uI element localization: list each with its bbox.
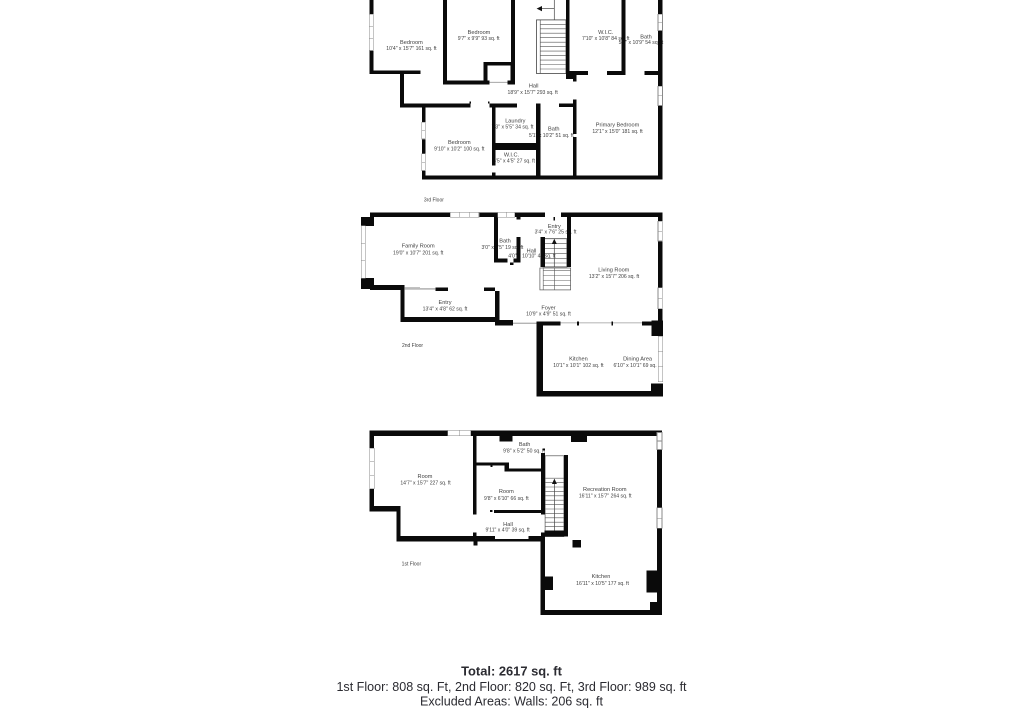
svg-text:16'11" x 10'5" 177 sq. ft: 16'11" x 10'5" 177 sq. ft: [576, 581, 629, 587]
svg-text:Bath: Bath: [548, 126, 560, 132]
svg-text:Entry: Entry: [438, 300, 451, 306]
svg-text:Hall: Hall: [529, 84, 539, 90]
svg-text:Room: Room: [499, 489, 514, 495]
svg-text:18'9" x 15'7" 293 sq. ft: 18'9" x 15'7" 293 sq. ft: [508, 90, 559, 96]
svg-text:3rd Floor: 3rd Floor: [424, 197, 444, 203]
svg-text:Laundry: Laundry: [505, 118, 525, 124]
svg-text:9'10" x 10'2" 100 sq. ft: 9'10" x 10'2" 100 sq. ft: [434, 147, 485, 153]
svg-text:Room: Room: [418, 474, 433, 480]
svg-text:Bath: Bath: [499, 238, 511, 244]
svg-text:12'1" x 15'0" 181 sq. ft: 12'1" x 15'0" 181 sq. ft: [592, 129, 643, 135]
svg-text:9'8" x 5'2" 50 sq. ft: 9'8" x 5'2" 50 sq. ft: [503, 448, 545, 454]
svg-text:16'11" x 15'7" 264 sq. ft: 16'11" x 15'7" 264 sq. ft: [579, 494, 632, 500]
svg-text:19'0" x 10'7" 201 sq. ft: 19'0" x 10'7" 201 sq. ft: [393, 250, 444, 256]
svg-text:2nd Floor: 2nd Floor: [402, 343, 423, 349]
svg-text:Primary Bedroom: Primary Bedroom: [596, 122, 640, 128]
svg-text:Recreation Room: Recreation Room: [583, 487, 627, 493]
svg-text:Living Room: Living Room: [598, 268, 629, 274]
svg-text:10'1" x 10'1" 102 sq. ft: 10'1" x 10'1" 102 sq. ft: [553, 363, 604, 369]
svg-text:7'3" x 5'5" 34 sq. ft: 7'3" x 5'5" 34 sq. ft: [492, 125, 534, 131]
svg-text:Excluded Areas: Walls: 206 sq.: Excluded Areas: Walls: 206 sq. ft: [420, 695, 603, 709]
svg-text:Kitchen: Kitchen: [569, 357, 588, 363]
svg-text:9'7" x 9'9" 93 sq. ft: 9'7" x 9'9" 93 sq. ft: [458, 36, 500, 42]
svg-text:Family Room: Family Room: [402, 244, 435, 250]
svg-text:Bedroom: Bedroom: [448, 140, 471, 146]
svg-text:10'9" x 4'9" 51 sq. ft: 10'9" x 4'9" 51 sq. ft: [526, 311, 571, 317]
svg-text:Bedroom: Bedroom: [468, 30, 491, 36]
svg-text:5'1" x 10'2" 51 sq. ft: 5'1" x 10'2" 51 sq. ft: [529, 133, 574, 139]
svg-text:Kitchen: Kitchen: [592, 574, 611, 580]
svg-text:9'11" x 4'0" 39 sq. ft: 9'11" x 4'0" 39 sq. ft: [485, 528, 530, 534]
svg-text:14'7" x 15'7" 227 sq. ft: 14'7" x 15'7" 227 sq. ft: [400, 480, 451, 486]
svg-text:Bedroom: Bedroom: [400, 40, 423, 46]
svg-text:Dining Area: Dining Area: [623, 357, 653, 363]
svg-text:6'10" x 10'1" 69 sq. ft: 6'10" x 10'1" 69 sq. ft: [613, 363, 661, 369]
svg-text:13'4" x 4'8" 62 sq. ft: 13'4" x 4'8" 62 sq. ft: [423, 307, 468, 313]
svg-text:6'5" x 4'5" 27 sq. ft: 6'5" x 4'5" 27 sq. ft: [493, 158, 535, 164]
svg-text:9'8" x 6'10" 66 sq. ft: 9'8" x 6'10" 66 sq. ft: [484, 496, 529, 502]
svg-text:Bath: Bath: [519, 442, 531, 448]
svg-text:13'2" x 15'7" 206 sq. ft: 13'2" x 15'7" 206 sq. ft: [589, 274, 640, 280]
svg-text:Total: 2617 sq. ft: Total: 2617 sq. ft: [461, 664, 562, 679]
svg-text:10'4" x 15'7" 161 sq. ft: 10'4" x 15'7" 161 sq. ft: [386, 46, 437, 52]
svg-text:1st Floor: 808 sq. Ft, 2nd Flo: 1st Floor: 808 sq. Ft, 2nd Floor: 820 sq…: [336, 680, 687, 694]
svg-text:1st Floor: 1st Floor: [402, 562, 422, 568]
